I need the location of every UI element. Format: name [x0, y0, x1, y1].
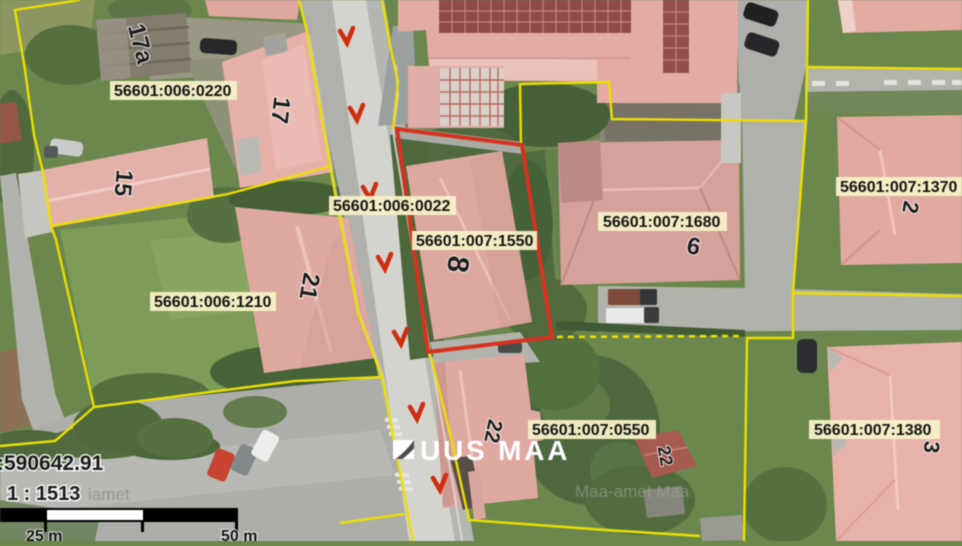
- svg-text:56601:007:1550: 56601:007:1550: [416, 233, 534, 250]
- svg-text:56601:006:0220: 56601:006:0220: [114, 83, 232, 100]
- svg-text:56601:007:1370: 56601:007:1370: [840, 179, 958, 196]
- svg-text:56601:006:1210: 56601:006:1210: [154, 294, 272, 311]
- svg-text:21: 21: [294, 271, 325, 302]
- svg-text:56601:007:1380: 56601:007:1380: [814, 422, 932, 439]
- svg-text:3: 3: [919, 440, 945, 454]
- svg-text:25 m: 25 m: [26, 528, 62, 541]
- svg-text:UUS MAA: UUS MAA: [420, 435, 570, 466]
- svg-text:50 m: 50 m: [221, 528, 257, 541]
- svg-text:22: 22: [654, 444, 677, 467]
- svg-text::590642.91: :590642.91: [0, 452, 104, 475]
- svg-text:iamet: iamet: [88, 485, 130, 504]
- svg-text:17: 17: [265, 95, 295, 125]
- svg-text:56601:007:1680: 56601:007:1680: [603, 214, 721, 231]
- svg-text:Maa-amet Maa: Maa-amet Maa: [575, 482, 690, 501]
- svg-text:1 : 1513: 1 : 1513: [7, 483, 80, 505]
- svg-text:56601:006:0022: 56601:006:0022: [333, 198, 451, 215]
- svg-text:15: 15: [109, 169, 138, 198]
